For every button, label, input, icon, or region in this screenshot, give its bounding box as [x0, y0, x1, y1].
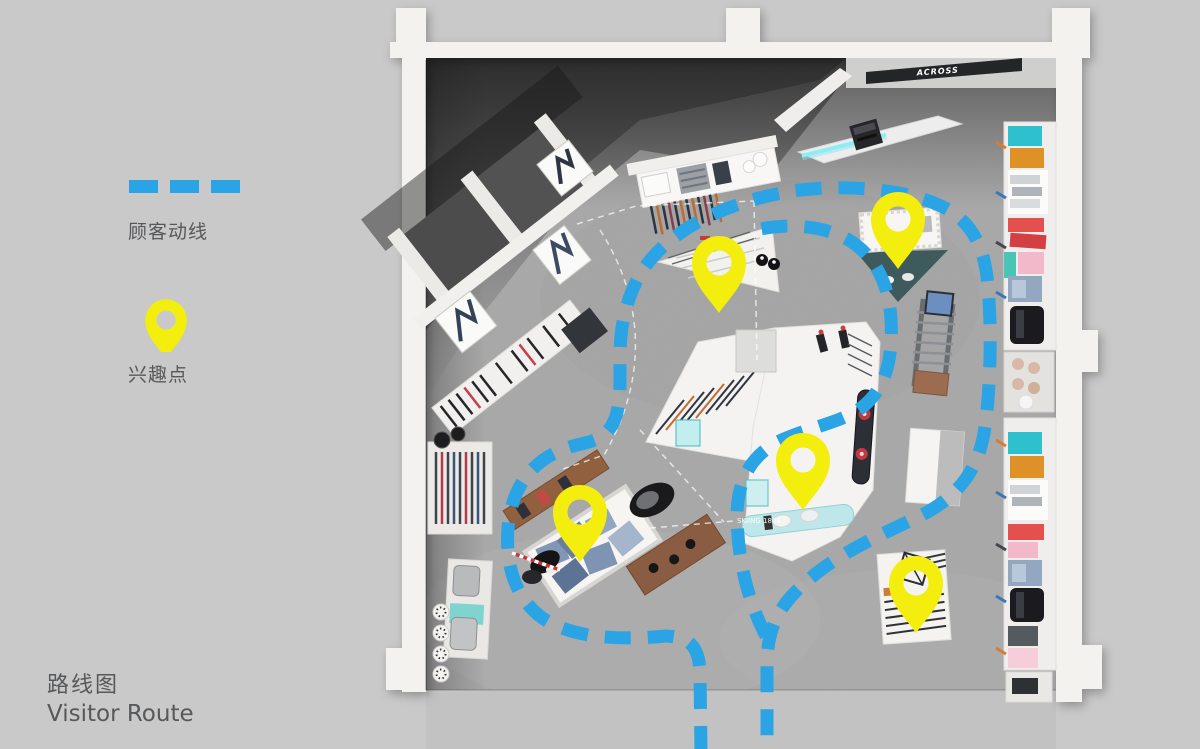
visitor-route-infographic: 顾客动线 兴趣点: [0, 0, 1200, 749]
zone-label: SKIING 1804: [737, 517, 781, 525]
wood-base: [913, 370, 949, 395]
screen: [925, 291, 953, 316]
column-stub: [726, 8, 760, 48]
column-stub: [396, 8, 426, 48]
teal-display: [676, 420, 700, 446]
floor-plan: ACROSS: [0, 0, 1200, 749]
teal-display: [746, 480, 768, 506]
wall-pier: [1082, 645, 1102, 689]
wall-pier: [1082, 330, 1098, 372]
title-en: Visitor Route: [47, 700, 194, 729]
column-stub: [1052, 8, 1090, 48]
display-table-right: [905, 428, 964, 506]
right-wall-shelves: [996, 122, 1056, 702]
title-zh: 路线图: [47, 672, 194, 700]
bag-display: [443, 559, 492, 659]
wall-pier: [386, 648, 404, 690]
entrance-area: [426, 690, 1056, 749]
page-title: 路线图 Visitor Route: [47, 672, 194, 728]
